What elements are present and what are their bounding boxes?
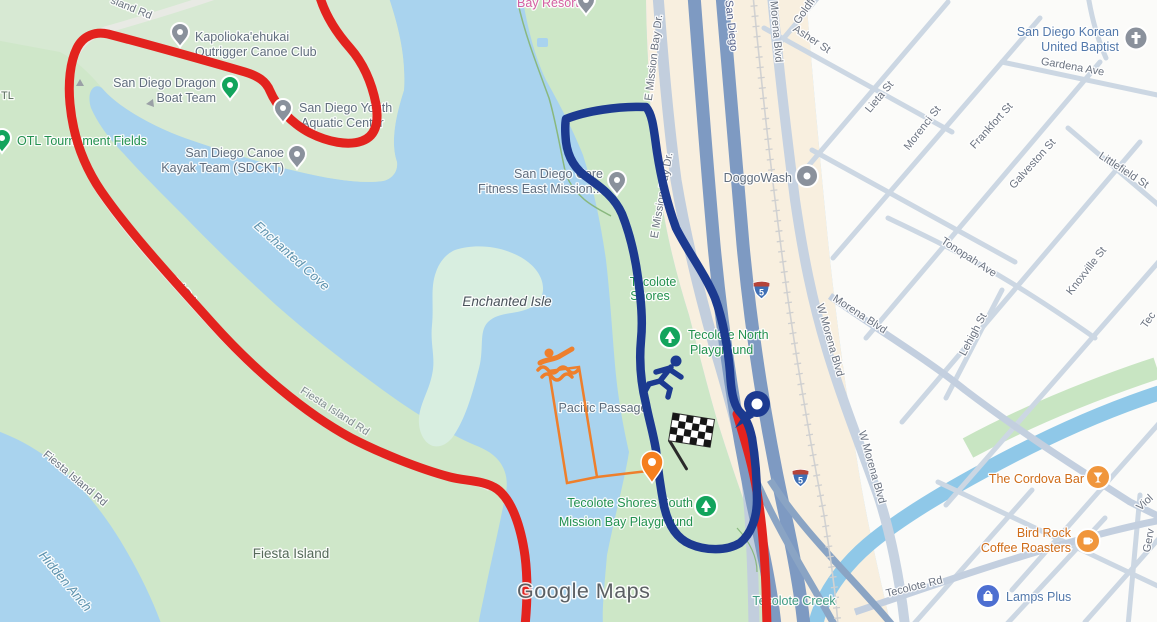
area-label: Fiesta Island — [253, 546, 330, 561]
poi-label[interactable]: The Cordova Bar — [989, 472, 1084, 486]
poi-pin-lamps-plus-icon[interactable] — [976, 584, 1000, 608]
poi-label[interactable]: Fitness East Mission... — [478, 182, 603, 196]
poi-label[interactable]: Playground — [690, 343, 753, 357]
area-label: Enchanted Isle — [462, 294, 551, 309]
poi-label[interactable]: San Diego Canoe — [185, 146, 284, 160]
poi-pin-tecolote-south-playground[interactable] — [695, 495, 717, 517]
i5-shield-number: 5 — [798, 476, 803, 486]
poi-pin-tecolote-north-playground[interactable] — [659, 326, 681, 348]
poi-label[interactable]: Lamps Plus — [1006, 590, 1071, 604]
poi-label[interactable]: United Baptist — [1041, 40, 1119, 54]
poi-label[interactable]: DoggoWash — [724, 171, 792, 185]
poi-label[interactable]: Boat Team — [156, 91, 216, 105]
map-svg[interactable]: 5 5 sland Rd Fiesta Island Rd nd Rd Fies… — [0, 0, 1157, 622]
poi-label[interactable]: Kayak Team (SDCKT) — [161, 161, 284, 175]
poi-label[interactable]: Outrigger Canoe Club — [195, 45, 317, 59]
poi-label[interactable]: Bird Rock — [1017, 526, 1072, 540]
i5-shield-number: 5 — [759, 288, 764, 298]
pond — [537, 38, 548, 47]
poi-label[interactable]: Coffee Roasters — [981, 541, 1071, 555]
poi-label[interactable]: Kapolioka'ehukai — [195, 30, 289, 44]
poi-label[interactable]: San Diego Dragon — [113, 76, 216, 90]
poi-label[interactable]: San Diego Korean — [1017, 25, 1119, 39]
poi-pin-korean-baptist-church-icon[interactable] — [1125, 27, 1148, 50]
area-label: TL — [1, 90, 14, 102]
poi-pin-cordova-bar-icon[interactable] — [1086, 465, 1110, 489]
map-canvas[interactable]: 5 5 sland Rd Fiesta Island Rd nd Rd Fies… — [0, 0, 1157, 622]
poi-label[interactable]: Tecolote Shores South — [567, 496, 693, 510]
poi-pin-doggowash[interactable] — [796, 165, 818, 187]
google-maps-watermark[interactable]: Google Maps — [517, 579, 650, 603]
poi-pin-bird-rock-coffee-icon[interactable] — [1076, 529, 1100, 553]
poi-label[interactable]: Bay Resort — [517, 0, 579, 10]
water-label: Pacific Passage — [559, 401, 648, 415]
